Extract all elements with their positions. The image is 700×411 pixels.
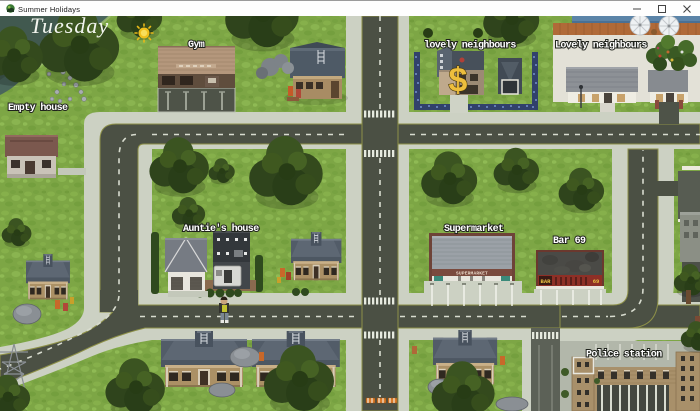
svg-text:Tuesday: Tuesday <box>30 16 109 38</box>
svg-text:$: $ <box>448 64 468 102</box>
svg-text:BAR: BAR <box>541 278 552 285</box>
svg-text:Police station: Police station <box>586 349 662 361</box>
svg-text:Empty house: Empty house <box>8 102 68 114</box>
svg-text:Lovely neighbours: Lovely neighbours <box>555 40 647 52</box>
svg-text:Bar 69: Bar 69 <box>553 236 586 247</box>
svg-text:Auntie's house: Auntie's house <box>183 223 259 235</box>
svg-text:Gym: Gym <box>188 40 205 51</box>
svg-text:69: 69 <box>593 278 600 285</box>
svg-text:lovely neighbours: lovely neighbours <box>424 40 516 52</box>
svg-text:Supermarket: Supermarket <box>444 223 504 235</box>
svg-text:SUPERMARKET: SUPERMARKET <box>456 271 488 277</box>
